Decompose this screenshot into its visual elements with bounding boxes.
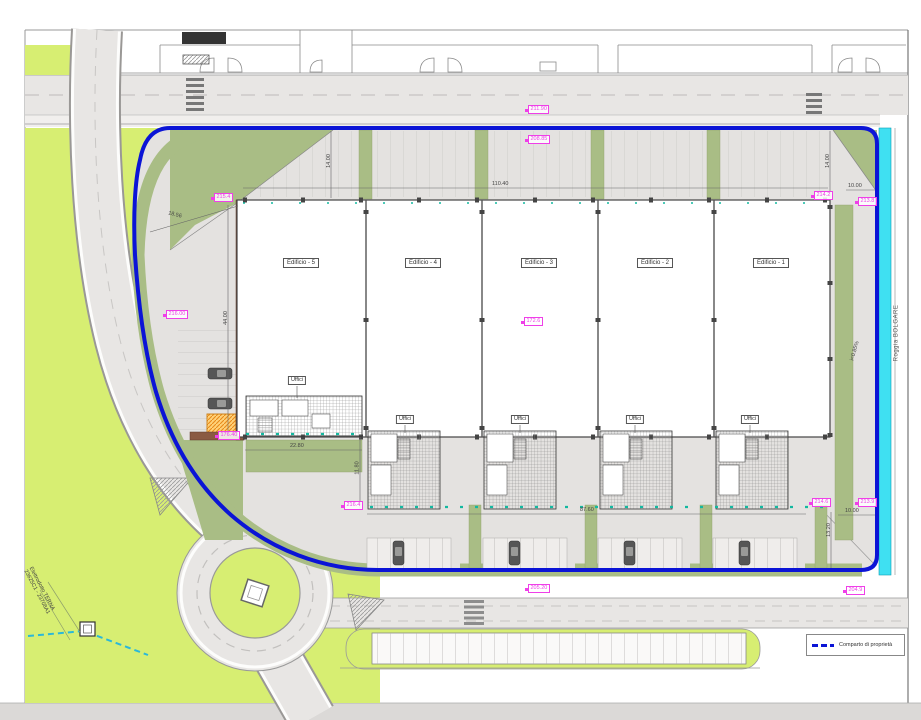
quota-215-4: 215.4 xyxy=(214,193,233,202)
quota-211-90: 211.90 xyxy=(528,105,549,114)
public-parking-strip xyxy=(340,629,760,669)
dim-14-00-right: 14.00 xyxy=(825,154,831,168)
quota-176-40: 176.40 xyxy=(218,431,240,440)
legend-boundary-label: Comparto di proprietà xyxy=(839,642,892,648)
quota-214-2: 214.2 xyxy=(814,191,833,200)
bottom-road xyxy=(318,598,908,628)
quota-204-9: 204.9 xyxy=(846,586,865,595)
adjacent-buildings xyxy=(25,30,908,73)
office-label-2: Uffici xyxy=(626,415,644,424)
office-label-3: Uffici xyxy=(511,415,529,424)
building-label-edificio-2: Edificio - 2 xyxy=(637,258,673,268)
legend-box: Comparto di proprietà xyxy=(806,634,905,656)
quota-172-6: 172.6 xyxy=(524,317,543,326)
dim-13-20: 13.20 xyxy=(826,523,832,537)
dim-10-00-bottom: 10.00 xyxy=(845,508,859,514)
legend-boundary-swatch xyxy=(812,644,834,647)
office-label-5: Uffici xyxy=(288,376,306,385)
quota-213-9: 213.9 xyxy=(858,498,877,507)
dim-110-40: 110.40 xyxy=(492,181,508,187)
quota-216-4: 216.4 xyxy=(344,501,363,510)
building-label-edificio-5: Edificio - 5 xyxy=(283,258,319,268)
site-plan-drawing xyxy=(0,0,921,720)
dim-10-00-top: 10.00 xyxy=(848,183,862,189)
dim-87-60: 87.60 xyxy=(580,507,594,513)
office-label-4: Uffici xyxy=(396,415,414,424)
site-plan-canvas: Edificio - 5 Edificio - 4 Edificio - 3 E… xyxy=(0,0,921,720)
building-label-edificio-4: Edificio - 4 xyxy=(405,258,441,268)
canal-label: Roggia BOLGARE xyxy=(893,305,899,362)
dim-44-00: 44.00 xyxy=(223,311,229,325)
dim-11-80: 11.80 xyxy=(355,461,361,474)
quota-205-20: 205.20 xyxy=(528,584,550,593)
office-label-1: Uffici xyxy=(741,415,759,424)
quota-208-85: 208.85 xyxy=(528,135,550,144)
dim-22-80: 22.80 xyxy=(290,443,304,449)
building-label-edificio-1: Edificio - 1 xyxy=(753,258,789,268)
quota-216-00: 216.00 xyxy=(166,310,188,319)
top-road xyxy=(25,75,908,127)
quota-214-6: 214.6 xyxy=(812,498,831,507)
quota-213-8: 213.8 xyxy=(858,197,877,206)
building-label-edificio-3: Edificio - 3 xyxy=(521,258,557,268)
dim-14-00-left: 14.00 xyxy=(326,154,332,168)
